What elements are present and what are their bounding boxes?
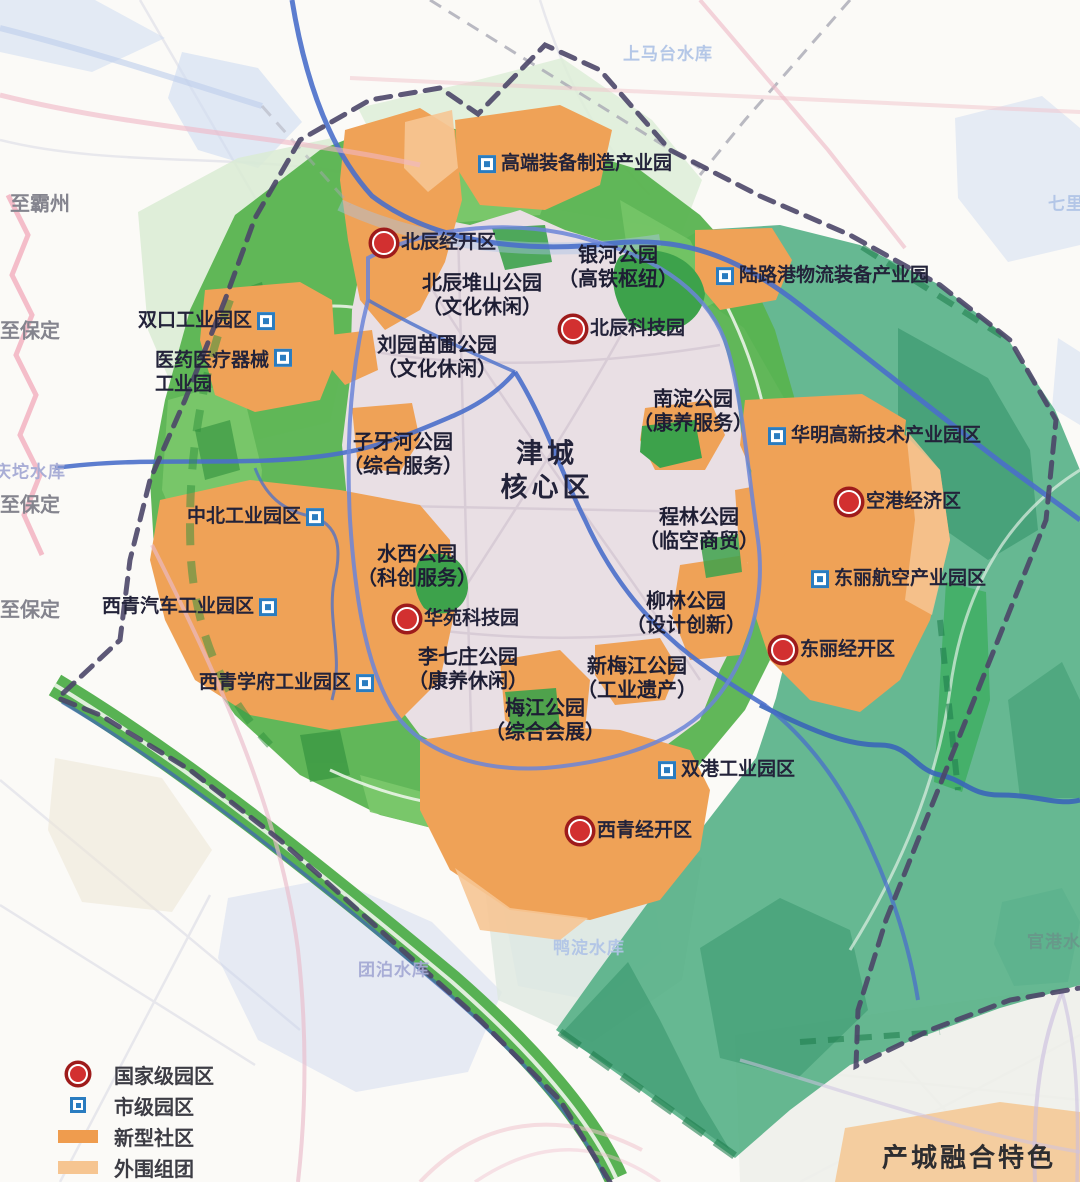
legend-item: 外围组团 (56, 1153, 214, 1181)
map-caption: 产城融合特色 (882, 1138, 1056, 1175)
legend-item: 国家级园区 (56, 1060, 214, 1088)
legend-symbol-cell (56, 1130, 100, 1143)
legend-symbol (58, 1161, 98, 1174)
legend-symbol-cell (56, 1161, 100, 1174)
map-base-art (0, 0, 1080, 1182)
legend-label: 国家级园区 (114, 1060, 214, 1089)
legend-item: 市级园区 (56, 1091, 214, 1119)
legend-label: 新型社区 (114, 1122, 194, 1151)
legend-symbol-cell (56, 1097, 100, 1113)
legend-item: 新型社区 (56, 1122, 214, 1150)
legend: 国家级园区 市级园区 新型社区 外围组团 (56, 1060, 214, 1181)
planning-map: 上马台水库七里海庆坨水库团泊水库鸭淀水库官港水库 至霸州至保定至保定至保定 北辰… (0, 0, 1080, 1182)
legend-symbol-cell (56, 1064, 100, 1084)
legend-symbol (68, 1064, 88, 1084)
core-area-label: 津城 核心区 (501, 437, 594, 505)
legend-symbol (70, 1097, 86, 1113)
legend-label: 外围组团 (114, 1153, 194, 1182)
legend-label: 市级园区 (114, 1091, 194, 1120)
legend-symbol (58, 1130, 98, 1143)
